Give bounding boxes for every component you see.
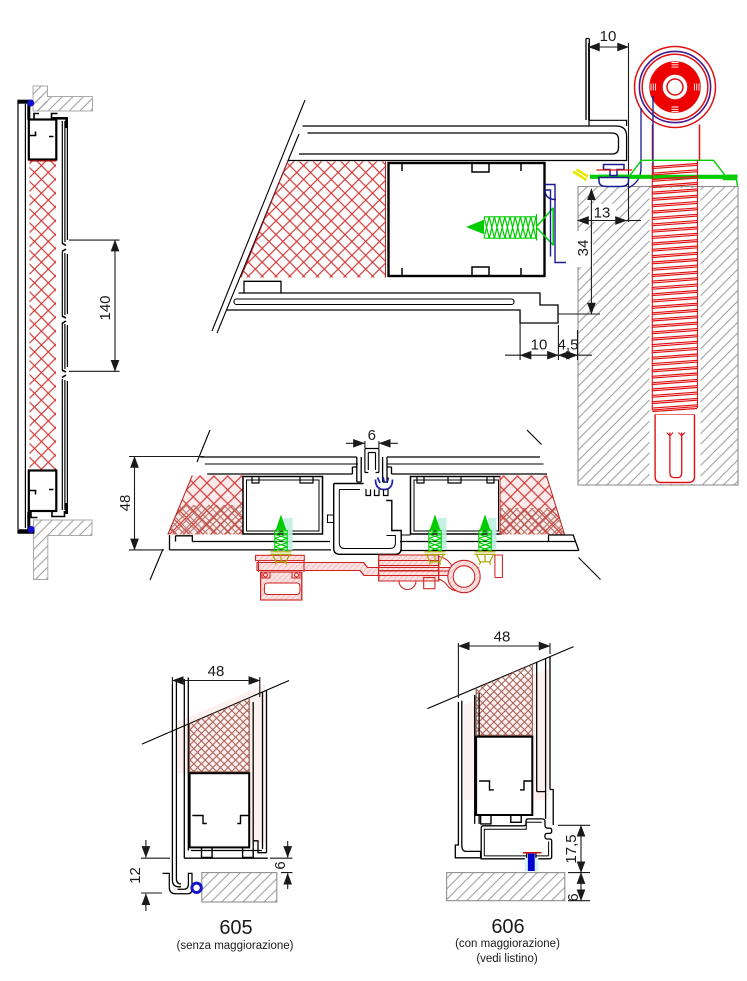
svg-text:140: 140 [97, 295, 114, 320]
svg-text:48: 48 [208, 663, 225, 680]
svg-text:17,5: 17,5 [563, 834, 580, 863]
svg-text:4,5: 4,5 [558, 337, 579, 354]
svg-text:(con maggiorazione): (con maggiorazione) [455, 938, 560, 950]
svg-text:48: 48 [117, 495, 134, 512]
svg-text:48: 48 [494, 629, 511, 646]
svg-text:6: 6 [272, 861, 289, 869]
svg-text:12: 12 [127, 867, 144, 884]
svg-text:34: 34 [575, 240, 592, 257]
svg-text:10: 10 [531, 337, 548, 354]
svg-text:6: 6 [565, 893, 582, 901]
svg-text:605: 605 [219, 917, 252, 939]
svg-text:10: 10 [600, 28, 617, 45]
svg-text:6: 6 [368, 427, 376, 444]
svg-text:(vedi listino): (vedi listino) [476, 953, 538, 965]
svg-text:606: 606 [491, 916, 524, 938]
svg-text:(senza maggiorazione): (senza maggiorazione) [177, 940, 294, 952]
svg-text:13: 13 [594, 205, 611, 222]
